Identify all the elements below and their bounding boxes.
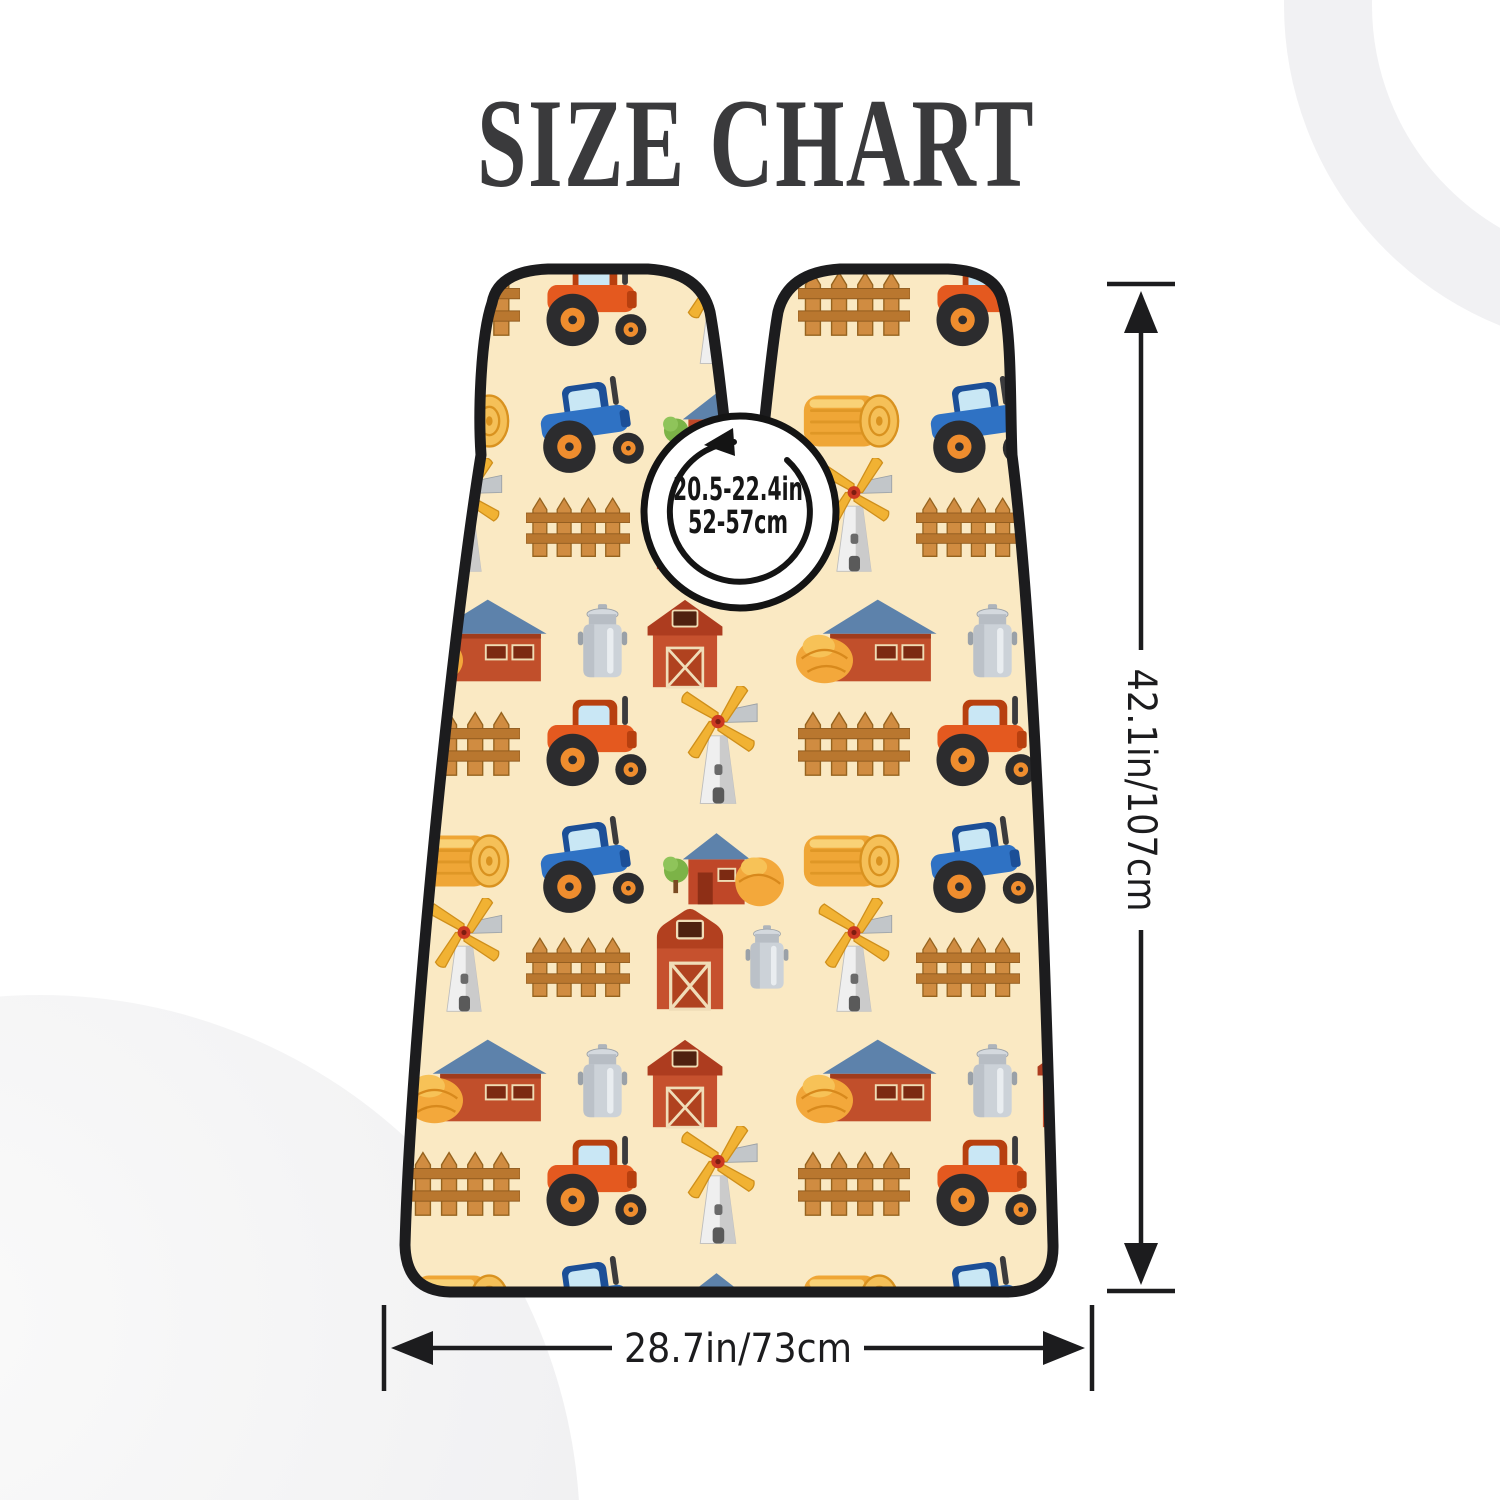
width-dimension-label: 28.7in/73cm	[624, 1326, 852, 1372]
page-title: SIZE CHART	[477, 74, 1035, 214]
decor-ring	[1328, 0, 1500, 307]
height-dimension-label: 42.1in/107cm	[1118, 669, 1164, 912]
neck-size-label-cm: 52-57cm	[688, 503, 788, 541]
arrow-up-icon	[1124, 291, 1158, 333]
arrow-down-icon	[1124, 1243, 1158, 1285]
neck-opening-badge: 20.5-22.4in 52-57cm	[644, 416, 836, 608]
size-chart-figure: SIZE CHART 20.5-22.4in 52-57cm 42.1in/10…	[0, 0, 1500, 1500]
size-chart-page: SIZE CHART 20.5-22.4in 52-57cm 42.1in/10…	[0, 0, 1500, 1500]
arrow-right-icon	[1043, 1331, 1085, 1365]
